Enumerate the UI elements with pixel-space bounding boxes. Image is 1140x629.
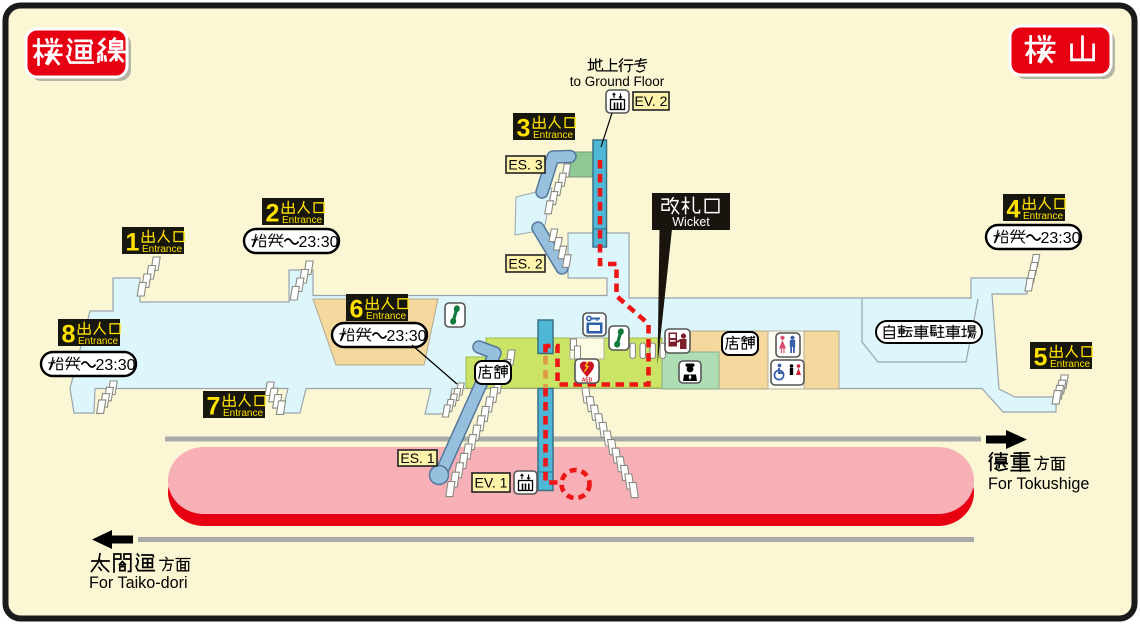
svg-text:Wicket: Wicket <box>672 215 710 229</box>
svg-text:23:30: 23:30 <box>299 234 339 251</box>
svg-text:Entrance: Entrance <box>78 336 118 347</box>
svg-text:ES. 3: ES. 3 <box>508 157 542 173</box>
svg-text:Entrance: Entrance <box>1023 211 1063 222</box>
svg-text:23:30: 23:30 <box>387 328 427 345</box>
svg-text:Entrance: Entrance <box>1050 359 1090 370</box>
svg-text:EV. 1: EV. 1 <box>475 475 508 491</box>
svg-text:23:30: 23:30 <box>1041 230 1081 247</box>
svg-text:2: 2 <box>266 200 280 228</box>
svg-text:3: 3 <box>517 115 531 143</box>
svg-text:23:30: 23:30 <box>96 357 136 374</box>
svg-text:7: 7 <box>207 393 221 421</box>
svg-text:Entrance: Entrance <box>366 311 406 322</box>
svg-text:For Taiko-dori: For Taiko-dori <box>89 574 188 592</box>
svg-text:5: 5 <box>1034 344 1048 372</box>
svg-text:4: 4 <box>1007 196 1021 224</box>
svg-text:8: 8 <box>62 321 76 349</box>
svg-text:Entrance: Entrance <box>533 130 573 141</box>
svg-text:AED: AED <box>582 378 593 384</box>
svg-text:Entrance: Entrance <box>223 408 263 419</box>
svg-text:ES. 2: ES. 2 <box>508 256 542 272</box>
svg-text:1: 1 <box>126 229 140 257</box>
svg-text:to Ground Floor: to Ground Floor <box>570 74 665 89</box>
svg-text:Entrance: Entrance <box>282 215 322 226</box>
svg-text:Entrance: Entrance <box>142 244 182 255</box>
svg-text:For Tokushige: For Tokushige <box>988 475 1089 493</box>
svg-text:EV. 2: EV. 2 <box>635 93 668 109</box>
svg-text:6: 6 <box>350 296 364 324</box>
svg-text:ES. 1: ES. 1 <box>400 450 434 466</box>
